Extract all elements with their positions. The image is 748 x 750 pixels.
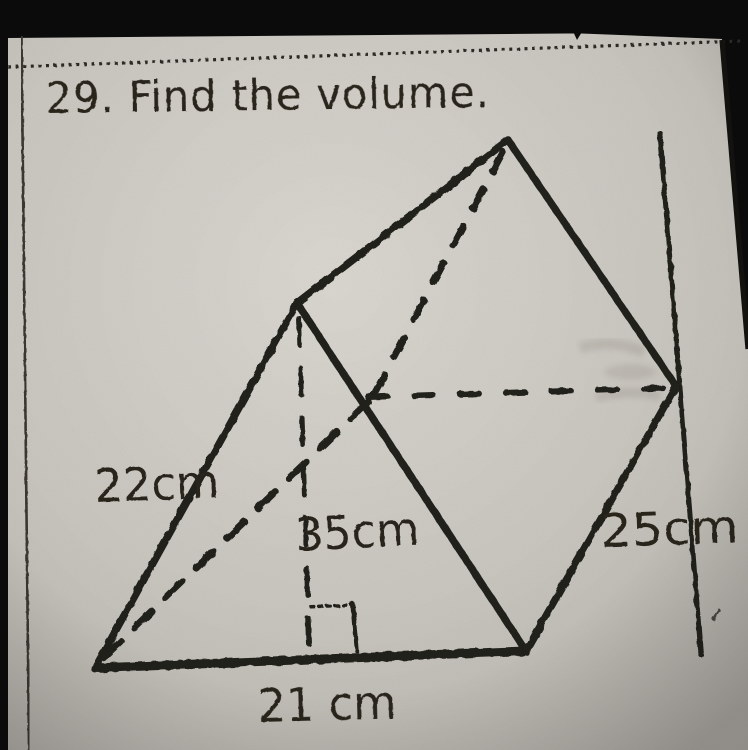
- worksheet-photo: 29. Find the volume. 22cm 35cm 25cm 21 c…: [0, 0, 748, 750]
- worksheet-canvas: 29. Find the volume. 22cm 35cm 25cm 21 c…: [0, 0, 748, 750]
- photo-vignette: [0, 0, 748, 750]
